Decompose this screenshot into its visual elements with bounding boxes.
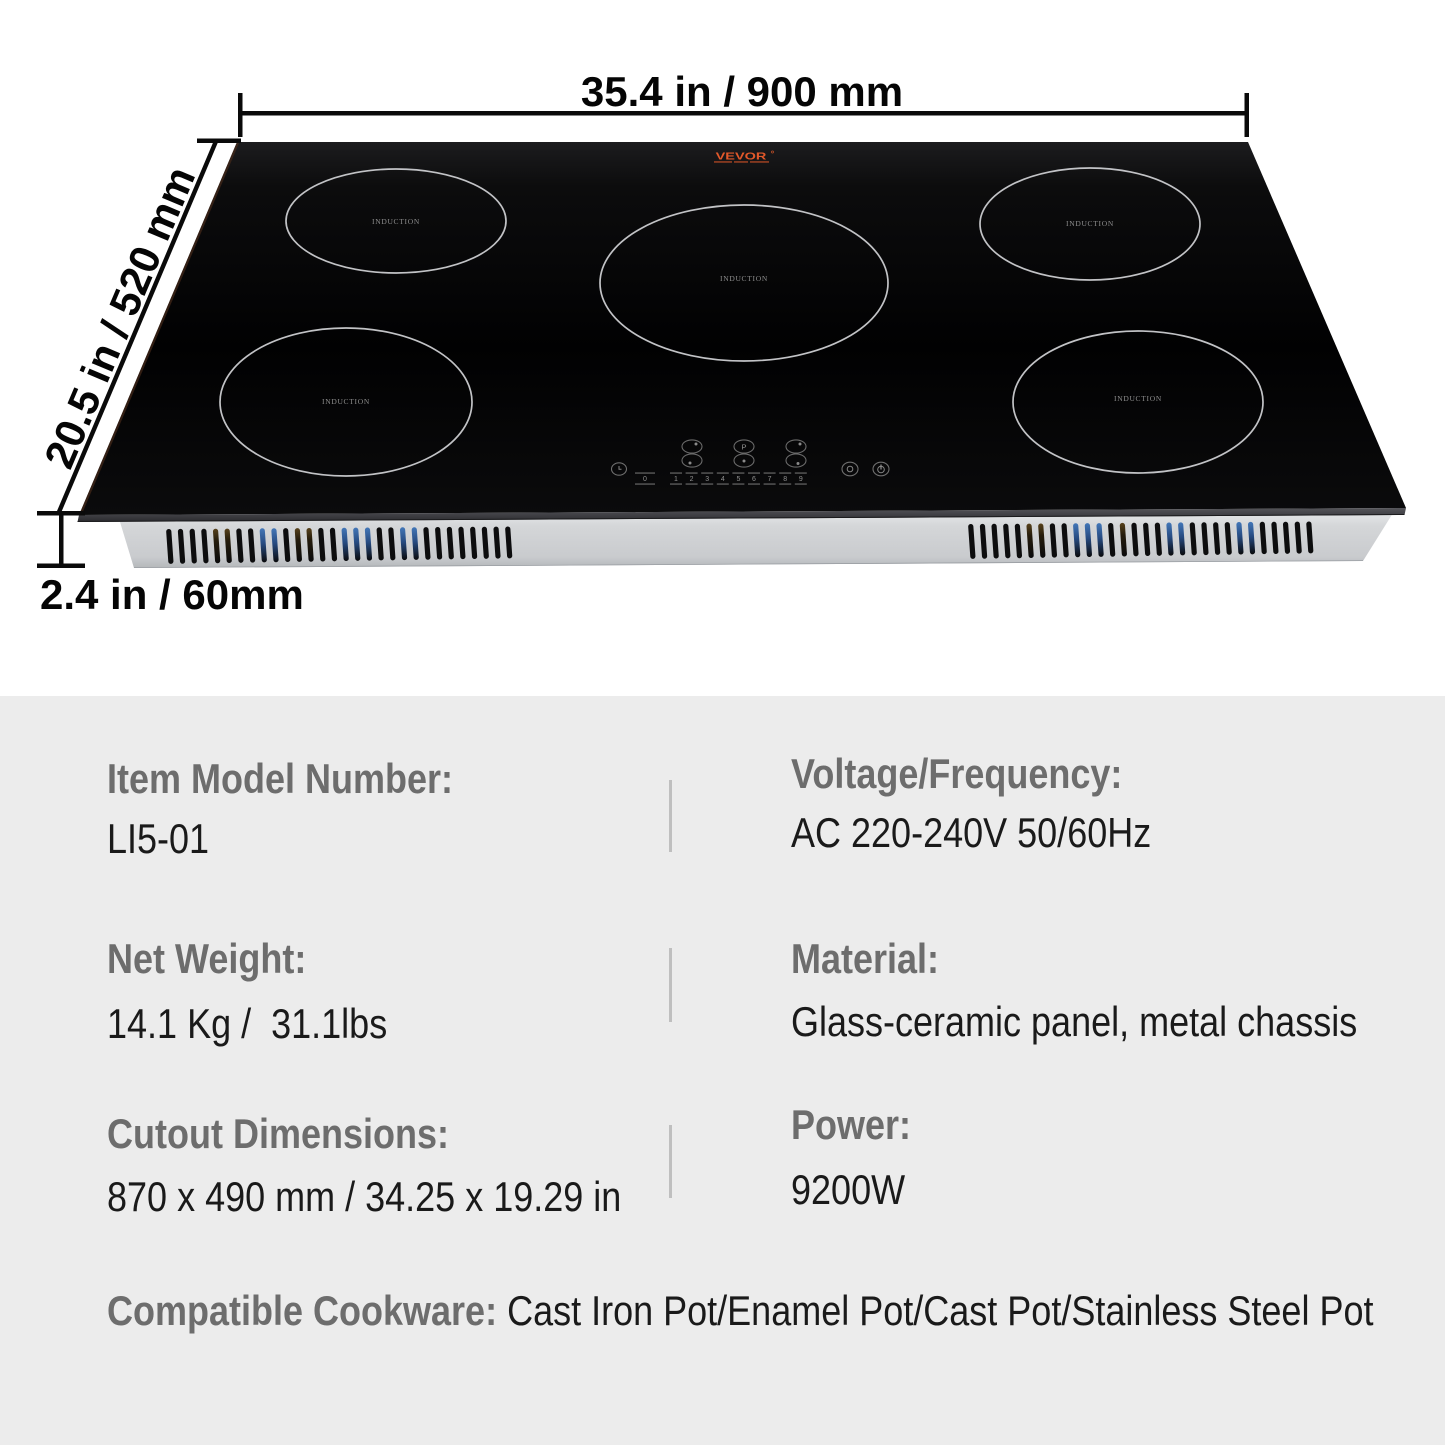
svg-text:INDUCTION: INDUCTION — [322, 397, 370, 406]
svg-text:7: 7 — [768, 476, 772, 483]
svg-text:P: P — [741, 443, 746, 452]
svg-text:2.4 in / 60mm: 2.4 in / 60mm — [40, 571, 304, 618]
svg-text:35.4 in / 900 mm: 35.4 in / 900 mm — [581, 68, 903, 115]
svg-text:INDUCTION: INDUCTION — [372, 217, 420, 226]
svg-text:9: 9 — [799, 476, 803, 483]
svg-text:6: 6 — [752, 476, 756, 483]
svg-text:0: 0 — [643, 476, 647, 483]
svg-text:4: 4 — [721, 476, 725, 483]
svg-text:INDUCTION: INDUCTION — [1066, 219, 1114, 228]
svg-text:INDUCTION: INDUCTION — [1114, 394, 1162, 403]
svg-text:3: 3 — [705, 476, 709, 483]
svg-text:2: 2 — [690, 476, 694, 483]
svg-text:1: 1 — [674, 476, 678, 483]
svg-text:8: 8 — [783, 476, 787, 483]
svg-text:INDUCTION: INDUCTION — [720, 274, 768, 283]
svg-text:VEVOR: VEVOR — [716, 151, 767, 162]
svg-text:5: 5 — [736, 476, 740, 483]
